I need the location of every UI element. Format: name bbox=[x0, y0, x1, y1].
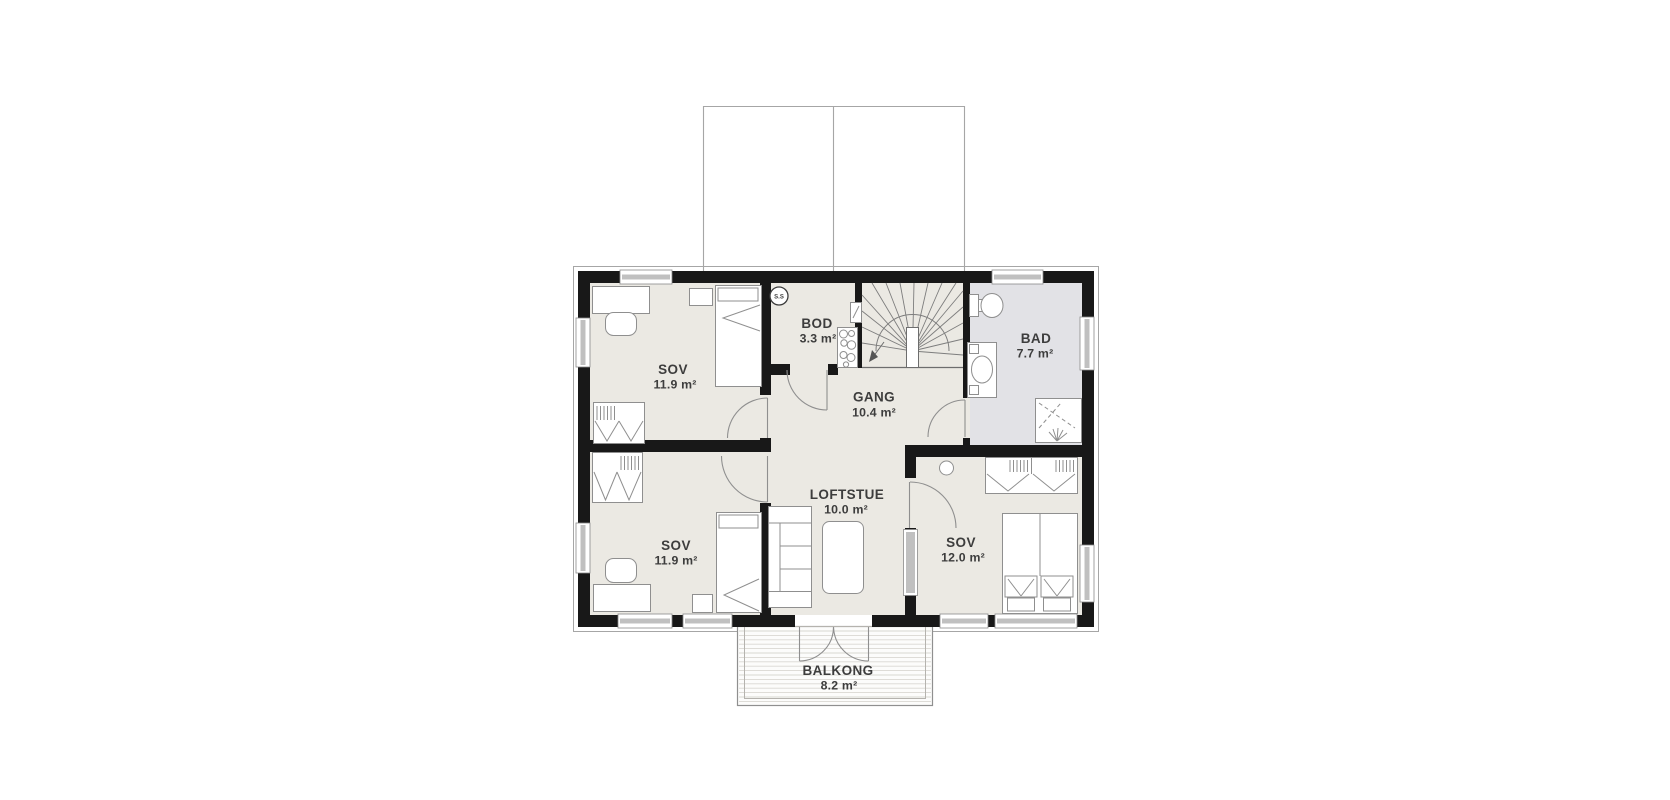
wardrobe-icon bbox=[593, 453, 643, 503]
wall-bottom-5 bbox=[988, 615, 995, 627]
wall-top-2 bbox=[672, 271, 992, 283]
room-area-sov-3: 12.0 m² bbox=[941, 551, 985, 565]
wall-right-3 bbox=[1082, 602, 1094, 627]
room-area-sov-2: 11.9 m² bbox=[654, 554, 697, 568]
window-glass-stripe bbox=[1085, 319, 1090, 368]
window-glass-stripe bbox=[994, 275, 1041, 280]
smoke-detector-badge: S.S bbox=[770, 287, 788, 305]
ceiling-lamp-icon bbox=[940, 461, 954, 475]
room-label-bad: BAD bbox=[1021, 331, 1051, 346]
room-area-sov-1: 11.9 m² bbox=[653, 378, 696, 392]
room-area-bad: 7.7 m² bbox=[1017, 347, 1054, 361]
wall-left-3 bbox=[578, 573, 590, 627]
room-area-bod: 3.3 m² bbox=[800, 332, 837, 346]
window-glass-stripe bbox=[906, 532, 915, 593]
window-glass-stripe bbox=[997, 619, 1075, 624]
shower-icon bbox=[1036, 399, 1082, 443]
double-bed-icon bbox=[1003, 514, 1078, 614]
room-label-loftstue: LOFTSTUE bbox=[810, 487, 884, 502]
wall-bottom-3 bbox=[732, 615, 795, 627]
window-glass-stripe bbox=[581, 320, 586, 365]
room-area-balkong: 8.2 m² bbox=[821, 679, 858, 693]
wardrobe-icon bbox=[594, 403, 645, 444]
room-label-gang: GANG bbox=[853, 390, 895, 405]
sink-vanity-icon bbox=[968, 343, 997, 398]
window-glass-stripe bbox=[620, 619, 670, 624]
wall-bottom-2 bbox=[672, 615, 683, 627]
room-label-sov-3: SOV bbox=[946, 535, 976, 550]
wall-bottom-4 bbox=[872, 615, 940, 627]
toilet-icon bbox=[970, 294, 1004, 318]
wall-sov3-left-3 bbox=[905, 593, 916, 615]
wall-sov3-left-1 bbox=[905, 457, 916, 478]
sofa-icon bbox=[769, 507, 812, 608]
window-glass-stripe bbox=[942, 619, 986, 624]
wall-right-1 bbox=[1082, 271, 1094, 317]
wall-bad-bottom bbox=[905, 445, 1082, 457]
room-label-balkong: BALKONG bbox=[802, 663, 873, 678]
room-area-loftstue: 10.0 m² bbox=[824, 503, 868, 517]
wall-left-1 bbox=[578, 271, 590, 318]
room-label-sov-1: SOV bbox=[658, 362, 688, 377]
dormer-outline bbox=[704, 107, 965, 272]
bed-icon bbox=[716, 286, 762, 387]
stair-newel-post bbox=[907, 328, 919, 368]
coffee-table-icon bbox=[823, 522, 864, 594]
window-glass-stripe bbox=[1085, 547, 1090, 600]
bed-icon bbox=[717, 513, 762, 613]
shelf-unit-icon bbox=[838, 328, 858, 368]
wall-left-2 bbox=[578, 367, 590, 523]
wall-bod-bottom-left bbox=[760, 364, 790, 375]
window-glass-stripe bbox=[685, 619, 730, 624]
wardrobe-icon bbox=[986, 458, 1078, 494]
room-label-bod: BOD bbox=[801, 316, 832, 331]
desk-icon bbox=[593, 287, 650, 314]
floor-plan-canvas: S.S SOV 11.9 m² SOV 11.9 m² SOV 12.0 m² … bbox=[0, 0, 1670, 800]
room-label-sov-2: SOV bbox=[661, 538, 691, 553]
room-area-gang: 10.4 m² bbox=[852, 406, 896, 420]
wall-right-2 bbox=[1082, 370, 1094, 545]
desk-icon bbox=[594, 585, 651, 612]
wall-bod-bottom-right bbox=[828, 364, 838, 375]
window-glass-stripe bbox=[622, 275, 670, 280]
chair-icon bbox=[606, 559, 637, 583]
nightstand-icon bbox=[693, 595, 713, 613]
chair-icon bbox=[606, 313, 637, 336]
nightstand-icon bbox=[690, 289, 713, 306]
floor-plan: S.S SOV 11.9 m² SOV 11.9 m² SOV 12.0 m² … bbox=[0, 0, 1670, 800]
electrical-cabinet-icon bbox=[851, 303, 862, 323]
smoke-detector-label: S.S bbox=[774, 295, 784, 301]
window-glass-stripe bbox=[581, 525, 586, 571]
